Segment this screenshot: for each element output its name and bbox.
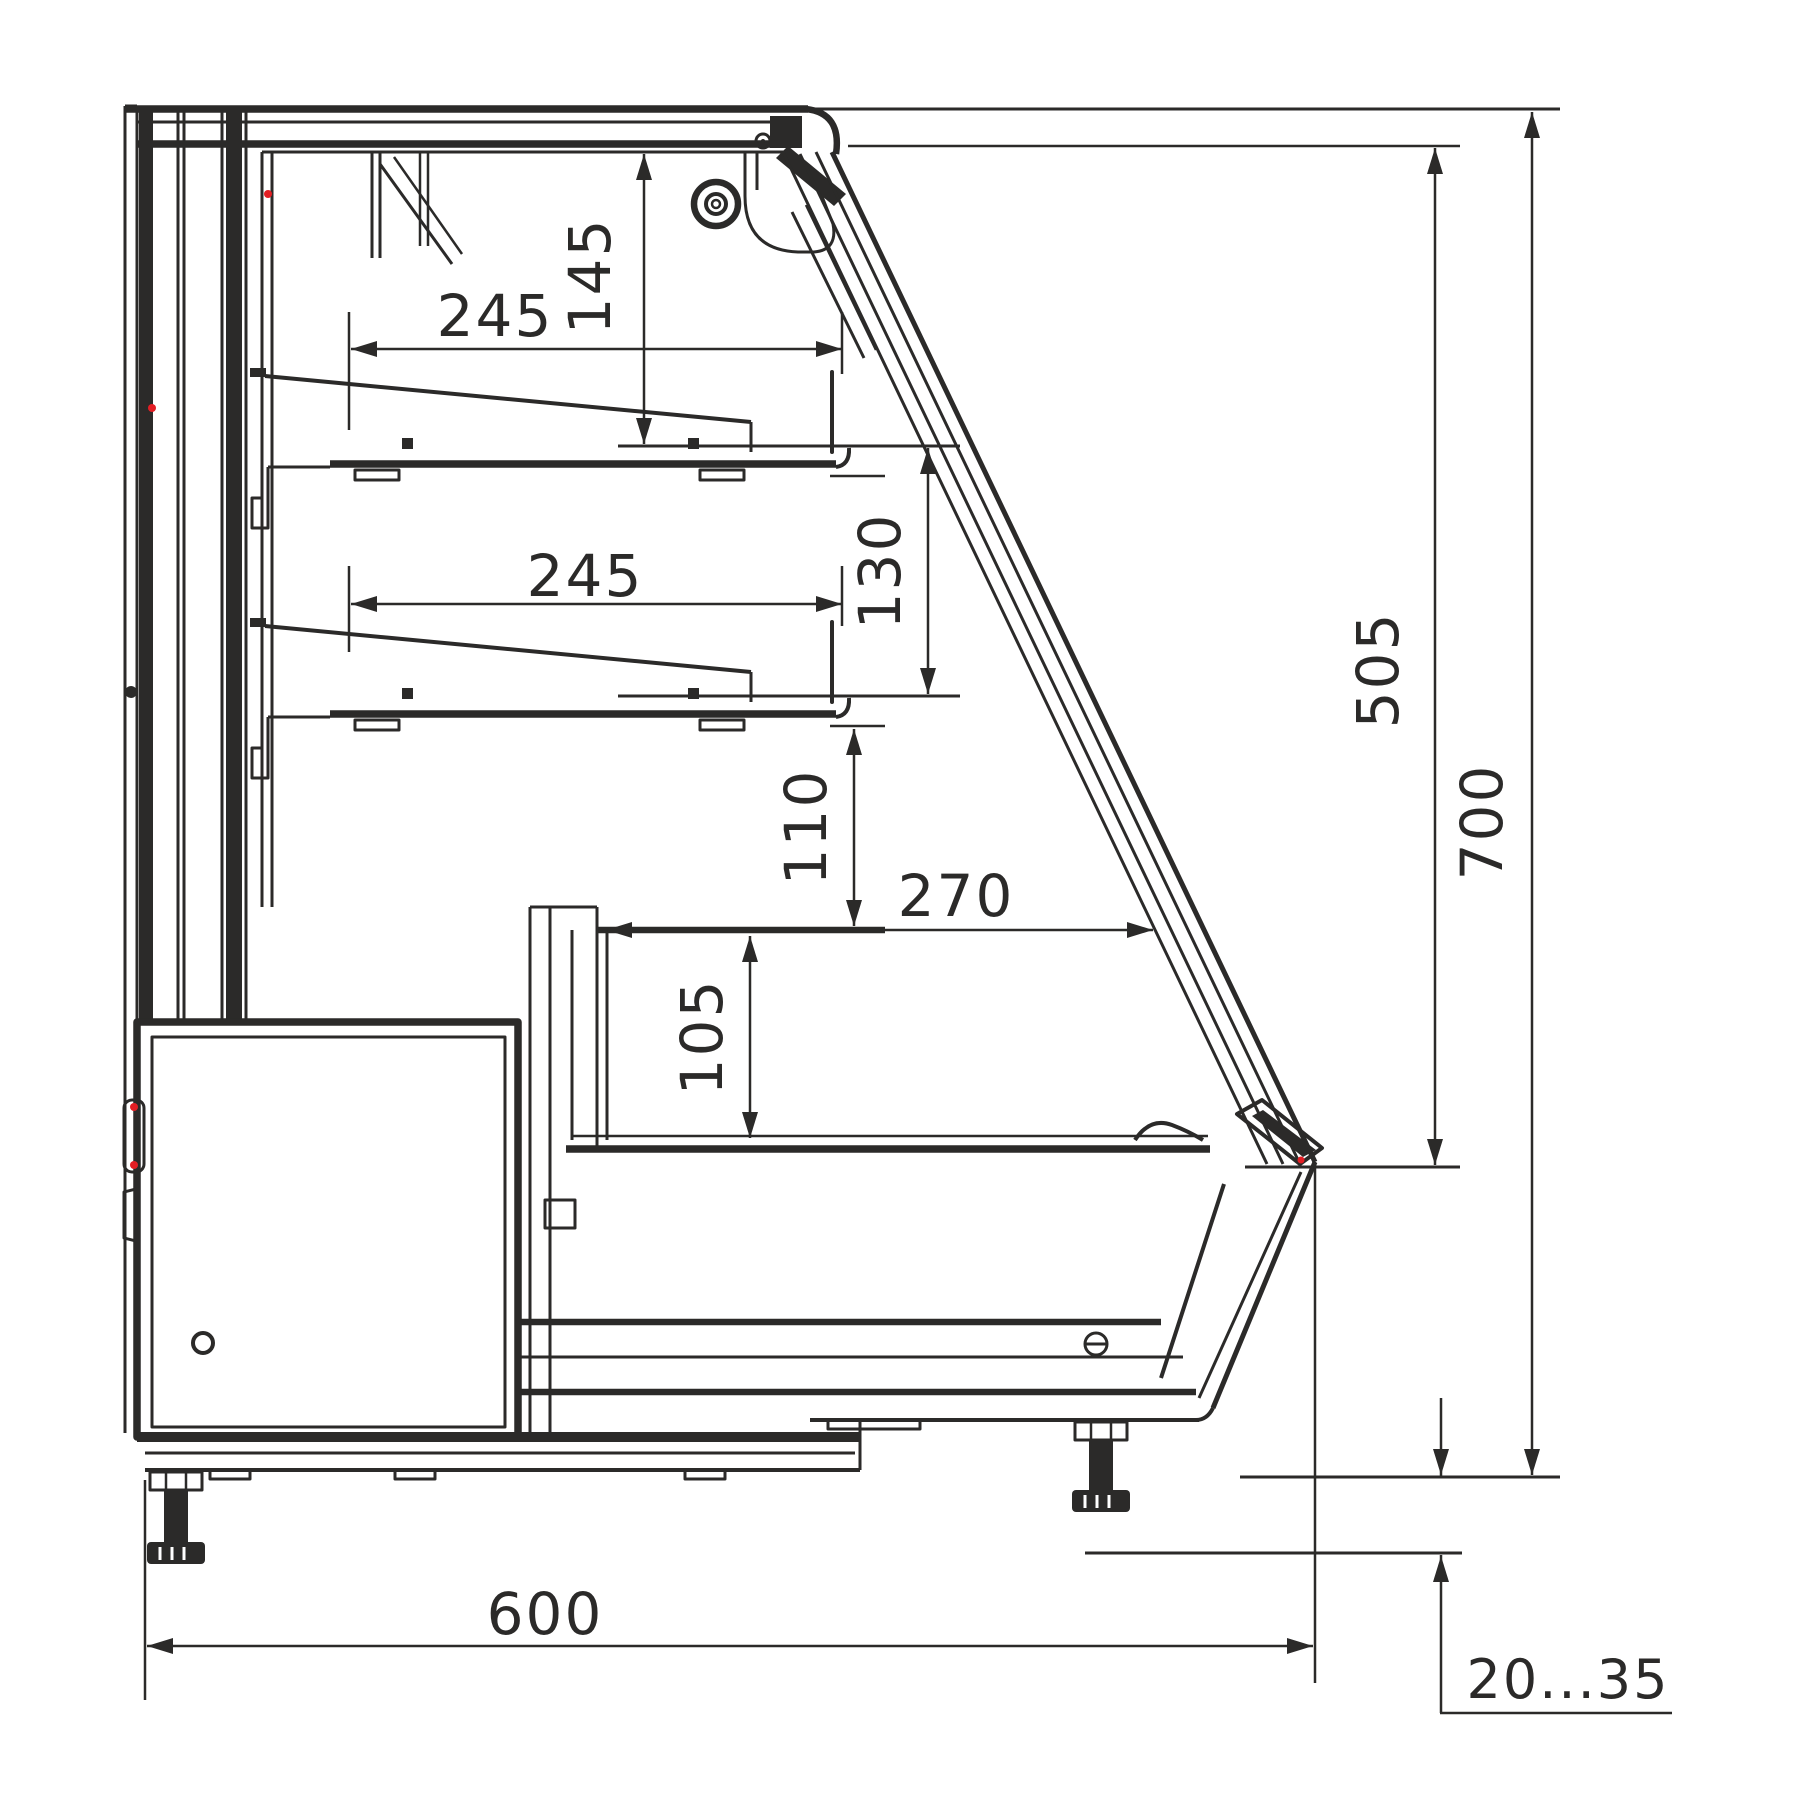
roller-axle	[712, 200, 720, 208]
hinge-block	[770, 116, 802, 148]
door-handle-hole	[193, 1333, 213, 1353]
base-tab	[395, 1470, 435, 1479]
shelf-slot-lower	[250, 618, 266, 627]
dim-canopy-to-shelf: 145	[556, 154, 652, 444]
dim-label: 600	[487, 1580, 604, 1648]
machine-compartment	[124, 1022, 518, 1437]
dim-label: 505	[1344, 612, 1412, 729]
dim-well-width: 270	[606, 862, 1153, 938]
dim-label: 245	[527, 542, 644, 610]
shelf-upper-clip	[700, 470, 744, 480]
dim-feet-range: 20...35	[1433, 1398, 1672, 1713]
base-frame	[137, 1420, 860, 1479]
sensor-mark-front	[1298, 1157, 1305, 1164]
back-wall	[125, 106, 462, 1433]
sensor-mark-top	[264, 190, 272, 198]
dim-shelf-lower-depth: 245	[349, 542, 842, 652]
sensor-mark-back	[148, 404, 156, 412]
dim-label: 130	[846, 513, 914, 630]
shelf-lower-clip	[700, 720, 744, 730]
section-drawing: 245 145 245 130 110 270	[0, 0, 1800, 1813]
dim-label: 245	[437, 282, 554, 350]
dim-label: 105	[668, 979, 736, 1096]
dim-label: 110	[772, 769, 840, 886]
dim-label: 270	[898, 862, 1015, 930]
dim-label: 145	[556, 218, 624, 335]
shelf-slot-upper	[250, 368, 266, 377]
base-tab	[685, 1470, 725, 1479]
drawing-sheet: 245 145 245 130 110 270	[0, 0, 1800, 1813]
roller-outer	[694, 182, 738, 226]
shelf-upper-clip	[355, 470, 399, 480]
compartment-door	[152, 1037, 505, 1427]
gasket	[1135, 1123, 1203, 1140]
shelf-lower-clip	[355, 720, 399, 730]
dim-shelf-to-counter: 110	[772, 729, 862, 926]
base-tab	[828, 1420, 920, 1429]
shelf-lower-hook	[252, 717, 268, 778]
back-wall-screw	[125, 686, 137, 698]
dim-overall-depth: 600	[147, 1580, 1313, 1654]
dim-overall-height: 700	[1448, 112, 1540, 1475]
leveling-foot-left	[147, 1472, 205, 1564]
leveling-foot-right	[1072, 1422, 1130, 1512]
dim-well-depth: 105	[668, 936, 758, 1138]
dim-glass-height: 505	[1344, 148, 1443, 1165]
shelf-upper	[252, 372, 960, 528]
dim-label: 20...35	[1467, 1648, 1670, 1711]
dim-label: 700	[1448, 764, 1516, 881]
dim-shelf-spacing: 130	[846, 448, 936, 694]
shelf-upper-hook	[252, 467, 268, 528]
roller-mid	[706, 194, 726, 214]
glass-front	[784, 152, 1315, 1164]
base-tab	[210, 1470, 250, 1479]
counter-well	[530, 907, 1210, 1433]
